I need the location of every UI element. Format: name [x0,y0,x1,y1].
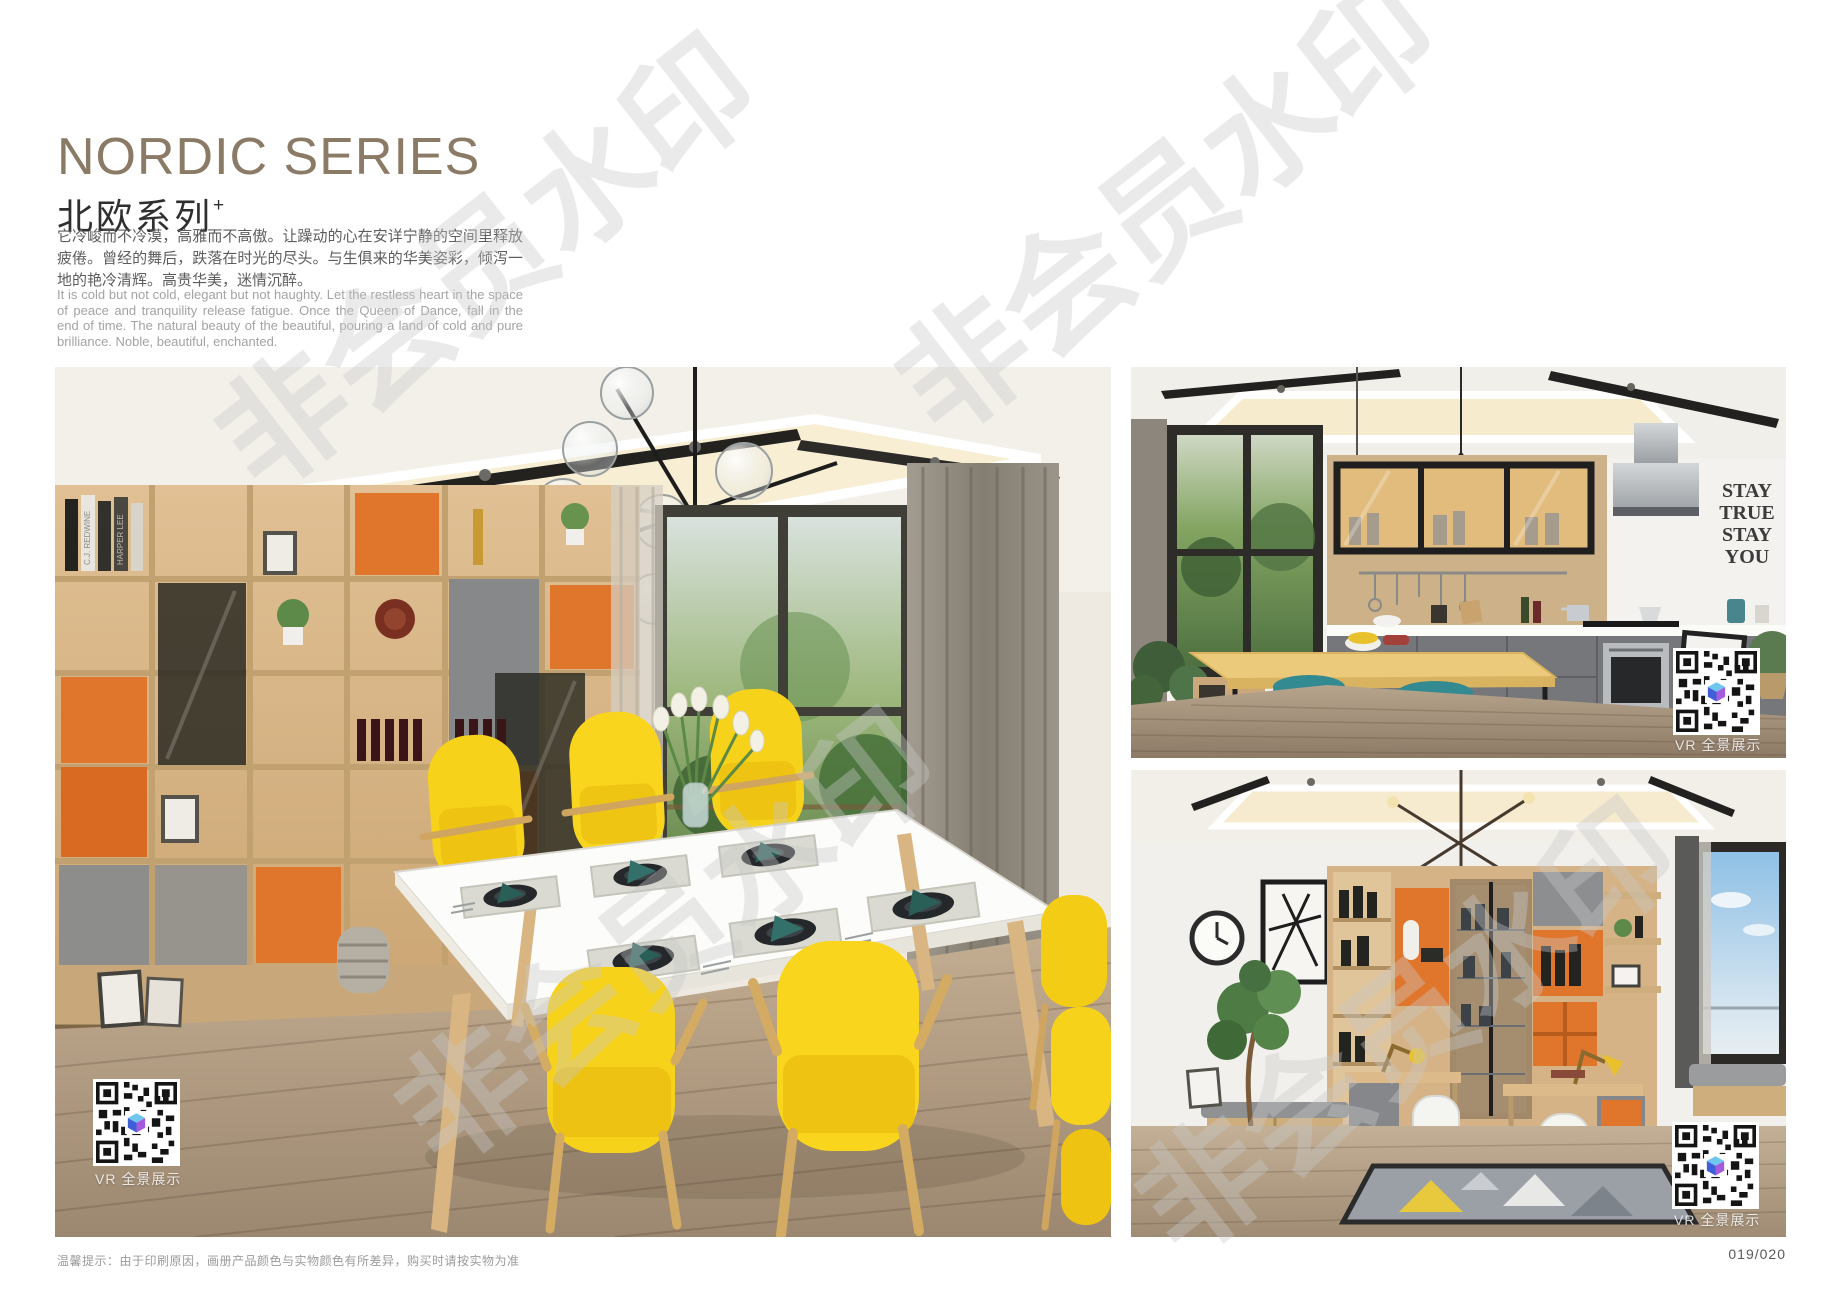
vr-panorama-label: VR 全景展示 [1674,1210,1760,1230]
page-number: 019/020 [1600,1246,1786,1262]
study-window [1675,836,1786,1116]
dining-room-photo: C.J. REDWINE HARPER LEE [55,367,1111,1237]
study-room-photo: VR 全景展示 [1131,770,1786,1237]
decal-line: TRUE [1719,502,1775,524]
decal-line: STAY [1722,524,1773,546]
qr-code [1673,648,1760,735]
description-english: It is cold but not cold, elegant but not… [57,287,523,349]
print-disclaimer: 温馨提示：由于印刷原因，画册产品颜色与实物颜色有所差异，购买时请按实物为准 [57,1252,520,1269]
kitchen-window [1167,425,1323,677]
gas-cooktop [1583,621,1679,627]
vr-panorama-label: VR 全景展示 [95,1169,181,1189]
orange-cube-shelf [1533,1002,1597,1066]
catalog-page: NORDIC SERIES 北欧系列+ 它冷峻而不冷漠，高雅而不高傲。让躁动的心… [0,0,1836,1307]
subtitle-plus-mark: + [213,195,224,216]
kitchen-photo: STAY TRUE STAY YOU [1131,367,1786,758]
wall-decal-stay-true: STAY TRUE STAY YOU [1719,480,1775,568]
window-seat [1689,1064,1786,1086]
book-spine-label: HARPER LEE [116,514,125,565]
books: C.J. REDWINE HARPER LEE [65,495,143,571]
qr-code [93,1079,180,1166]
decal-line: YOU [1725,546,1769,568]
description-chinese: 它冷峻而不冷漠，高雅而不高傲。让躁动的心在安详宁静的空间里释放疲倦。曾经的舞后，… [57,226,523,292]
glass-display-cabinet [1453,882,1529,1116]
page-title: NORDIC SERIES [57,131,480,183]
study-ceiling [1131,770,1786,842]
wall-clock [1192,913,1242,963]
abstract-art-frame [1263,882,1327,982]
study-curtain [1675,836,1699,1088]
vr-panorama-label: VR 全景展示 [1675,735,1761,755]
decal-line: STAY [1722,480,1773,502]
qr-code [1672,1122,1759,1209]
geometric-rug [1343,1166,1695,1222]
book-spine-label: C.J. REDWINE [83,511,92,565]
